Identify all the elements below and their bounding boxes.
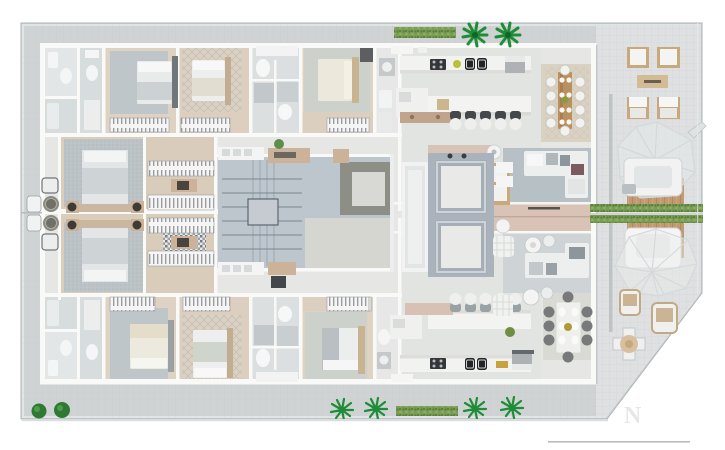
svg-text:N: N: [624, 403, 642, 429]
